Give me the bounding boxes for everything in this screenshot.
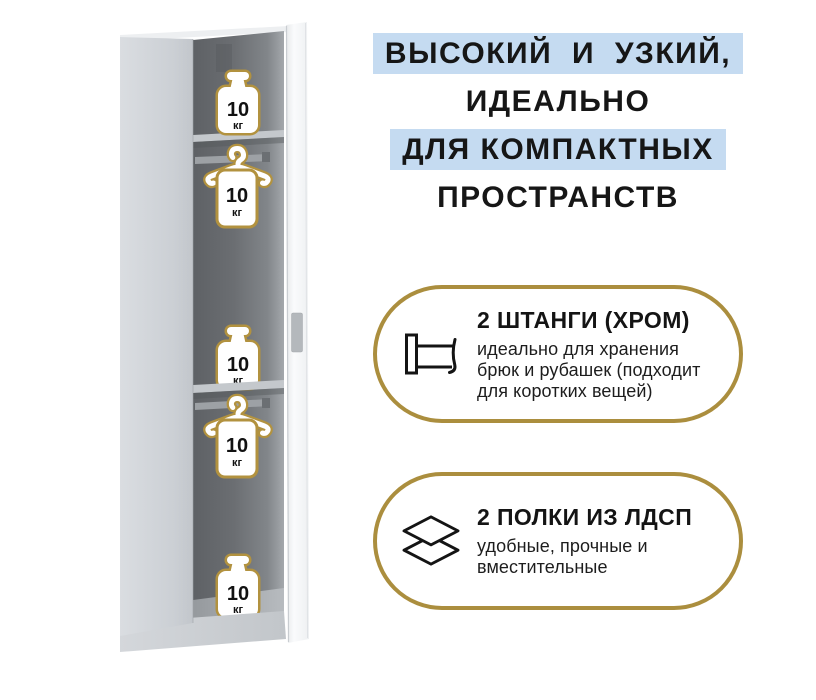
feature-card-shelves: 2 ПОЛКИ ИЗ ЛДСП удобные, прочные и вмест… xyxy=(373,472,743,610)
headline-line-3: ДЛЯ КОМПАКТНЫХ xyxy=(390,129,726,170)
headline-line-4: ПРОСТРАНСТВ xyxy=(425,177,691,218)
feature-card-rods: 2 ШТАНГИ (ХРОМ) идеально для хранения бр… xyxy=(373,285,743,423)
clothes-rail-icon xyxy=(399,331,463,377)
svg-text:10: 10 xyxy=(227,583,249,605)
stacked-shelves-icon xyxy=(399,514,463,568)
feature-title: 2 ШТАНГИ (ХРОМ) xyxy=(477,307,700,334)
svg-text:кг: кг xyxy=(233,120,244,132)
svg-text:10: 10 xyxy=(226,185,248,207)
door-handle xyxy=(292,313,303,352)
wardrobe-image: 10 кг 10 кг xyxy=(103,22,313,654)
headline-line-1: ВЫСОКИЙ И УЗКИЙ, xyxy=(373,33,743,74)
product-infographic: 10 кг 10 кг xyxy=(0,0,816,700)
feature-description: удобные, прочные и вместительные xyxy=(477,536,692,578)
headline: ВЫСОКИЙ И УЗКИЙ, ИДЕАЛЬНО ДЛЯ КОМПАКТНЫХ… xyxy=(336,33,780,225)
cabinet-side-panel xyxy=(120,37,193,636)
feature-text-rods: 2 ШТАНГИ (ХРОМ) идеально для хранения бр… xyxy=(477,307,718,402)
svg-text:кг: кг xyxy=(232,457,243,469)
interior-hinge-shadow xyxy=(216,44,232,72)
svg-text:кг: кг xyxy=(232,207,243,219)
cabinet-door xyxy=(286,22,309,643)
svg-text:10: 10 xyxy=(226,435,248,457)
feature-title: 2 ПОЛКИ ИЗ ЛДСП xyxy=(477,504,692,531)
svg-text:10: 10 xyxy=(227,99,249,121)
headline-line-2: ИДЕАЛЬНО xyxy=(454,81,663,122)
feature-text-shelves: 2 ПОЛКИ ИЗ ЛДСП удобные, прочные и вмест… xyxy=(477,504,710,578)
svg-text:10: 10 xyxy=(227,354,249,376)
feature-description: идеально для хранения брюк и рубашек (по… xyxy=(477,339,700,402)
